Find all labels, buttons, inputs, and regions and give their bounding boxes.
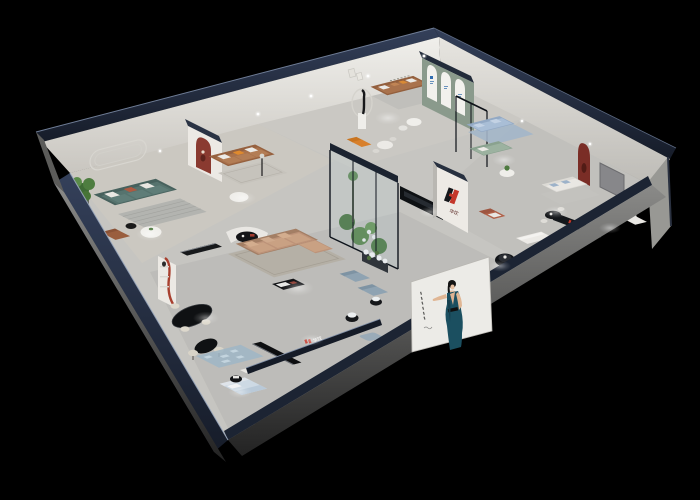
showroom-scene: 华饮 华饮 [0,0,700,500]
white-coffee-table [407,118,422,126]
niche-lamp [201,150,204,153]
red-display-shelf [158,256,176,308]
table-plant-2 [504,165,509,170]
white-side-table [399,125,408,130]
showroom-render: 华饮 华饮 [0,0,700,500]
black-side-table [126,223,137,229]
arch-blue-logo [430,76,433,79]
arch-panel-2 [441,72,451,109]
